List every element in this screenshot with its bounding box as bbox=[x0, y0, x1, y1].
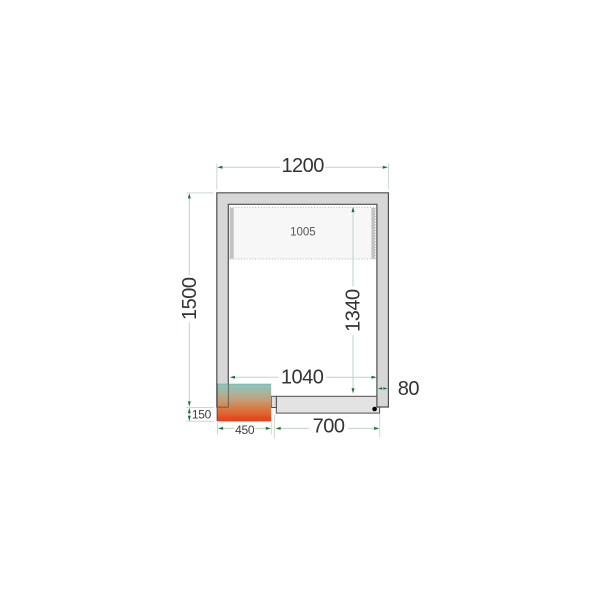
svg-text:1005: 1005 bbox=[290, 226, 316, 238]
svg-text:80: 80 bbox=[398, 378, 420, 400]
svg-text:700: 700 bbox=[313, 415, 345, 437]
svg-text:1340: 1340 bbox=[343, 289, 365, 332]
svg-text:450: 450 bbox=[235, 423, 255, 437]
svg-text:150: 150 bbox=[192, 407, 212, 421]
svg-text:1040: 1040 bbox=[281, 366, 324, 388]
svg-text:1500: 1500 bbox=[179, 277, 201, 320]
svg-text:1200: 1200 bbox=[281, 155, 324, 177]
